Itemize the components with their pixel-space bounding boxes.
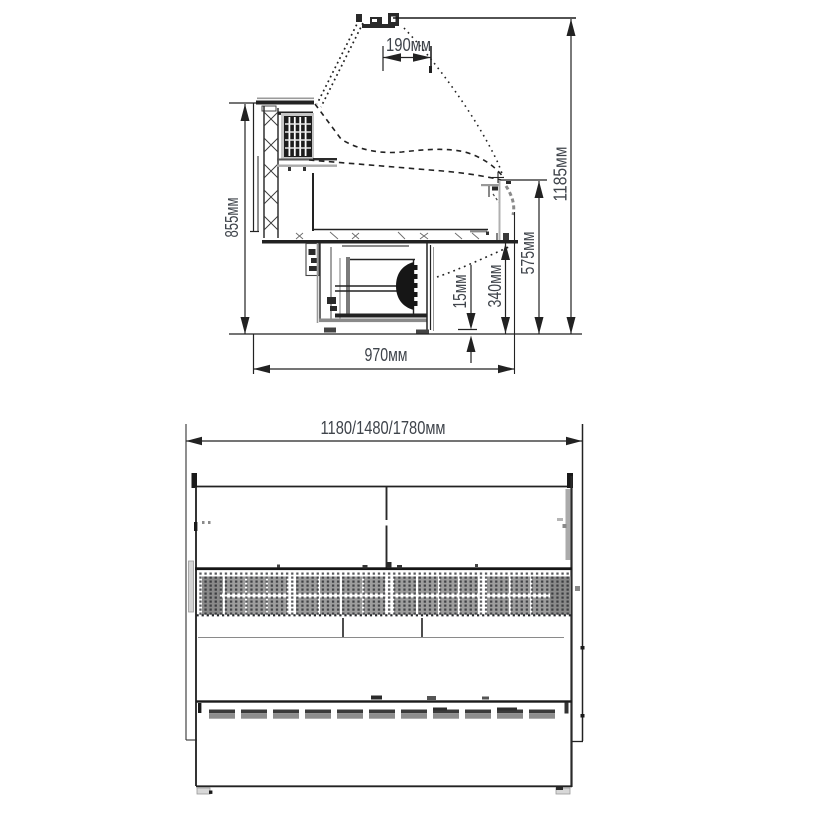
svg-text:575мм: 575мм xyxy=(518,232,538,275)
svg-text:190мм: 190мм xyxy=(386,35,431,55)
svg-text:970мм: 970мм xyxy=(365,345,408,365)
svg-text:15мм: 15мм xyxy=(450,275,470,309)
svg-text:855мм: 855мм xyxy=(222,198,242,238)
svg-text:340мм: 340мм xyxy=(485,265,505,308)
svg-text:1185мм: 1185мм xyxy=(551,147,571,202)
svg-text:1180/1480/1780мм: 1180/1480/1780мм xyxy=(321,418,446,438)
